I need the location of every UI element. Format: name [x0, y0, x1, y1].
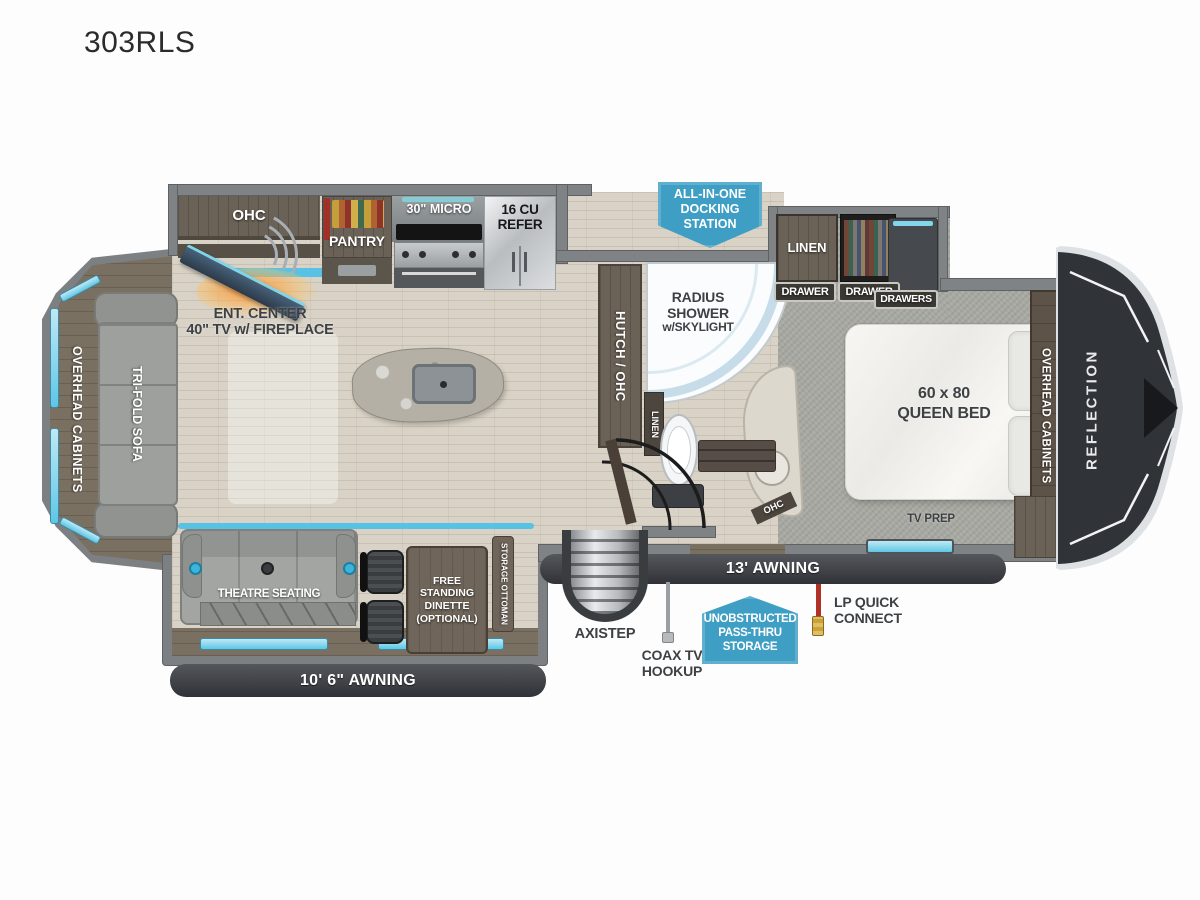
- lp-connect-line-icon: [816, 584, 821, 618]
- passthru-storage-badge: UNOBSTRUCTED PASS-THRU STORAGE: [702, 596, 798, 664]
- theatre-footrest-icon: [200, 602, 356, 626]
- drawers-box: DRAWERS: [874, 290, 938, 309]
- brand-reflection-label: REFLECTION: [1078, 296, 1106, 524]
- passthru-line1: UNOBSTRUCTED: [702, 613, 798, 627]
- axistep-label: AXISTEP: [550, 626, 660, 642]
- theatre-text: THEATRE SEATING: [218, 588, 320, 600]
- living-area-rug: [228, 332, 338, 504]
- oven-handle-icon: [402, 272, 476, 275]
- dinette-line4: (OPTIONAL): [416, 613, 477, 626]
- dinette-chair: [366, 600, 404, 644]
- coax-plug-icon: [662, 632, 674, 643]
- theatre-slideout-window-left: [200, 638, 328, 650]
- sofa-label: TRI-FOLD SOFA: [124, 336, 148, 492]
- lp-line2: CONNECT: [834, 611, 950, 627]
- docking-line3: STATION: [658, 217, 762, 232]
- axistep-text: AXISTEP: [575, 626, 636, 642]
- rear-awning-text: 10' 6" AWNING: [300, 672, 416, 690]
- pantry-drawer-icon: [338, 265, 376, 276]
- brand-text: REFLECTION: [1084, 350, 1101, 471]
- docking-line1: ALL-IN-ONE: [658, 187, 762, 202]
- dresser-accent-trim: [893, 221, 933, 226]
- rear-awning-bar: 10' 6" AWNING: [170, 664, 546, 697]
- shower-line1: RADIUS: [648, 290, 748, 306]
- hutch-cabinet: HUTCH / OHC: [598, 264, 642, 448]
- microwave-door-icon: [396, 224, 482, 240]
- cupholder-icon: [261, 562, 274, 575]
- bedroom-linen-text: LINEN: [788, 241, 827, 255]
- lp-line1: LP QUICK: [834, 595, 950, 611]
- shower-line2: SHOWER: [648, 306, 748, 322]
- shower-label: RADIUS SHOWER w/SKYLIGHT: [648, 290, 748, 335]
- sofa-text: TRI-FOLD SOFA: [129, 366, 143, 462]
- bedroom-dresser: [888, 218, 938, 292]
- refrigerator-door-split: [519, 246, 521, 286]
- bedroom-window: [866, 539, 954, 554]
- queen-bed-label: 60 x 80 QUEEN BED: [869, 384, 1019, 424]
- dinette-chair: [366, 550, 404, 594]
- tv-prep-text: TV PREP: [907, 513, 955, 525]
- bed-size-text: 60 x 80: [869, 384, 1019, 404]
- front-cap: [1032, 238, 1188, 578]
- ent-center-line1: ENT. CENTER: [176, 306, 344, 322]
- kitchen-top-wall: [168, 184, 592, 196]
- refrigerator-label: 16 CU REFER: [484, 202, 556, 232]
- lp-nozzle-icon: [812, 616, 824, 636]
- pantry-food-icon: [332, 200, 384, 228]
- hanging-clothes-icon: [844, 220, 892, 276]
- range-knob-icon: [402, 251, 409, 258]
- range-knob-icon: [419, 251, 426, 258]
- refrigerator-handle-icon: [512, 252, 515, 272]
- refrigerator-handle-icon: [524, 252, 527, 272]
- microwave-text: 30" MICRO: [407, 202, 472, 216]
- dinette-line3: DINETTE: [416, 600, 477, 613]
- rear-cabinets-text: OVERHEAD CABINETS: [69, 346, 83, 493]
- hutch-text: HUTCH / OHC: [613, 311, 627, 402]
- dinette-chair-back-icon: [360, 552, 367, 592]
- dinette-line2: STANDING: [416, 587, 477, 600]
- refer-line2: REFER: [484, 217, 556, 232]
- main-awning-text: 13' AWNING: [726, 560, 820, 578]
- pantry-label: PANTRY: [316, 234, 398, 249]
- microwave-label: 30" MICRO: [392, 203, 486, 217]
- floorplan-canvas: 303RLS OHC ENT. CENTER 40" TV w/ FIREPLA…: [0, 0, 1200, 900]
- mid-top-wall: [556, 250, 780, 262]
- range-knob-icon: [452, 251, 459, 258]
- pantry-text: PANTRY: [329, 233, 385, 249]
- theatre-seating-label: THEATRE SEATING: [186, 588, 352, 601]
- oven-body: [394, 268, 484, 288]
- storage-ottoman: STORAGE OTTOMAN: [492, 536, 514, 632]
- dinette-chair-back-icon: [360, 602, 367, 642]
- range-knob-icon: [469, 251, 476, 258]
- refer-line1: 16 CU: [484, 202, 556, 217]
- ent-center-line2: 40" TV w/ FIREPLACE: [176, 322, 344, 338]
- island-faucet-icon: [440, 381, 447, 388]
- passthru-line3: STORAGE: [702, 641, 798, 655]
- rear-window-left-bottom: [50, 428, 59, 524]
- tv-prep-label: TV PREP: [886, 513, 976, 526]
- drawer-left-text: DRAWER: [781, 286, 828, 298]
- docking-line2: DOCKING: [658, 202, 762, 217]
- bath-linen-text: LINEN: [649, 411, 659, 438]
- drawer-box-left: DRAWER: [774, 282, 836, 302]
- drawers-text: DRAWERS: [880, 294, 932, 306]
- coax-line2: HOOKUP: [616, 664, 728, 680]
- ent-center-label: ENT. CENTER 40" TV w/ FIREPLACE: [176, 306, 344, 338]
- floorplan-model-title: 303RLS: [84, 26, 195, 60]
- coax-hookup-line-icon: [666, 582, 670, 634]
- shower-line3: w/SKYLIGHT: [648, 321, 748, 334]
- rear-window-left-top: [50, 308, 59, 408]
- cupholder-accent-icon: [343, 562, 356, 575]
- ottoman-text: STORAGE OTTOMAN: [499, 543, 508, 625]
- bedroom-steps: [698, 440, 776, 472]
- cupholder-accent-icon: [189, 562, 202, 575]
- dinette-label: FREE STANDING DINETTE (OPTIONAL): [416, 575, 477, 625]
- kitchen-left-wall: [168, 184, 178, 256]
- sofa-armrest-icon: [94, 502, 178, 538]
- rear-overhead-cabinets-label: OVERHEAD CABINETS: [64, 306, 88, 532]
- bedroom-linen-cabinet: LINEN: [776, 214, 838, 282]
- lp-connect-label: LP QUICK CONNECT: [834, 595, 950, 626]
- axistep-steps-icon: [571, 530, 639, 614]
- dinette-line1: FREE: [416, 575, 477, 588]
- dinette-table: FREE STANDING DINETTE (OPTIONAL): [406, 546, 488, 654]
- passthru-line2: PASS-THRU: [702, 627, 798, 641]
- bed-type-text: QUEEN BED: [869, 404, 1019, 424]
